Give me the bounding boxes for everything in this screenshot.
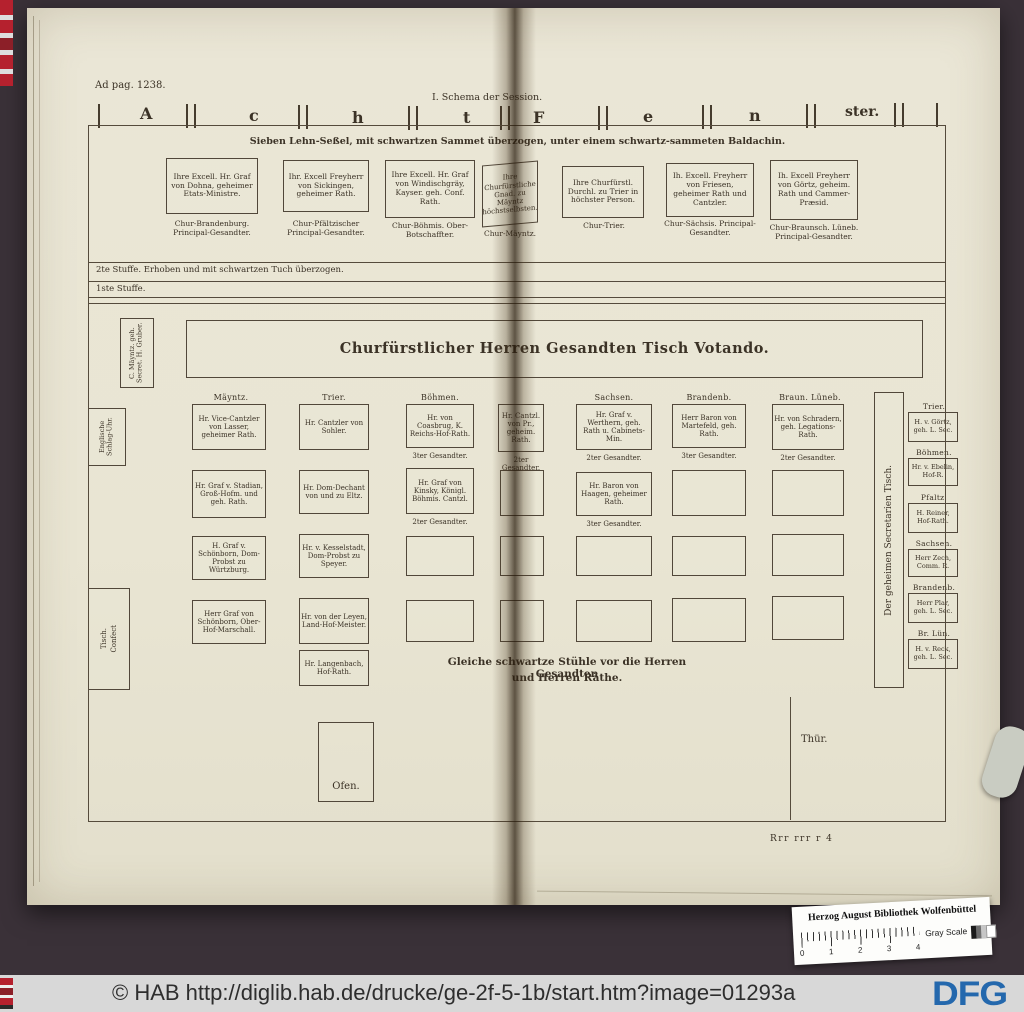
color-calibration-strip-top [0, 0, 13, 86]
secretary-box: H. Reiner, Hof-Rath. [908, 503, 958, 533]
chair-caption: Chur-Trier. [560, 222, 648, 231]
confect-label-1: Confect [110, 625, 118, 653]
seat-box: Hr. Graf v. Werthern, geh. Rath u. Cabin… [576, 404, 652, 450]
seat-box-empty [772, 534, 844, 576]
window-tick [894, 103, 896, 127]
seat-box-empty [406, 600, 474, 642]
ruler-number: 1 [829, 947, 834, 956]
seat-box: Hr. Cantzler von Sohler. [299, 404, 369, 450]
ruler-number: 2 [858, 946, 863, 955]
schema-session-label: I. Schema der Session. [432, 92, 542, 103]
chair-box: Ihre Excell. Hr. Graf von Windischgräy, … [385, 160, 475, 218]
column-header-braun: Braun. Lüneb. [770, 393, 850, 402]
confect-table: Tisch. Confect [88, 588, 130, 690]
ad-pag-label: Ad pag. 1238. [95, 80, 166, 91]
ruler-number: 4 [916, 943, 921, 952]
secretary-region: Böhmen. [908, 448, 960, 457]
window-tick [408, 106, 410, 130]
window-tick [902, 103, 904, 127]
seat-box-empty [576, 600, 652, 642]
column-header-brandenb: Brandenb. [672, 393, 746, 402]
printer-signature: Rrr rrr r 4 [770, 834, 833, 844]
sticker-title: Herzog August Bibliothek Wolfenbüttel [800, 903, 984, 924]
source-url-text: © HAB http://diglib.hab.de/drucke/ge-2f-… [112, 980, 795, 1006]
seat-box-empty [500, 536, 544, 576]
chair-box: Ihre Excell. Hr. Graf von Dohna, geheime… [166, 158, 258, 214]
seat-box: H. Graf v. Schönborn, Dom-Probst zu Würt… [192, 536, 266, 580]
wall-letter: A [140, 104, 152, 123]
secretaries-table: Der geheimen Secretarien Tisch. [874, 392, 904, 688]
chair-box: Ihre Churfürstliche Gnad. zu Mäyntz höch… [482, 161, 538, 228]
secretary-region: Brandenb. [908, 583, 960, 592]
window-tick [598, 106, 600, 130]
left-secretary-label: C. Mäyntz. geh. Secret. H. Gruber. [129, 320, 144, 386]
seat-sub: 3ter Gesandter. [406, 452, 474, 460]
seat-sub: 2ter Gesandter. [406, 518, 474, 526]
page-edge-line [39, 20, 40, 882]
seat-box: Hr. Cantzl. von Pr., geheim. Rath. [498, 404, 544, 452]
gray-swatch [986, 925, 997, 939]
ruler-coarse-ticks [801, 927, 920, 948]
secretaries-table-label: Der geheimen Secretarien Tisch. [884, 465, 895, 616]
seat-sub: 3ter Gesandter. [672, 452, 746, 460]
dfg-logo: DFG [932, 975, 1007, 1012]
seat-box-empty [500, 470, 544, 516]
secretary-box: Hr. v. Ebelin, Hof-R. [908, 458, 958, 486]
ruler-number: 3 [887, 944, 892, 953]
stove-label: Ofen. [332, 781, 359, 793]
window-tick [508, 106, 510, 130]
step2-label: 2te Stuffe. Erhoben und mit schwartzen T… [96, 265, 344, 275]
window-tick [606, 106, 608, 130]
wall-letter: e [643, 107, 653, 126]
chair-caption: Chur-Braunsch. Lüneb. Principal-Gesandte… [764, 224, 864, 241]
stove-box: Ofen. [318, 722, 374, 802]
chair-caption: Chur-Brandenburg. Principal-Gesandter. [158, 220, 266, 237]
page-edge-line [537, 891, 992, 897]
chair-box: Ih. Excell. Freyherr von Friesen, geheim… [666, 163, 754, 217]
screen: Ad pag. 1238. I. Schema der Session. A c… [0, 0, 1024, 1012]
seat-box: Hr. Graf v. Stadian, Groß-Hofm. und geh.… [192, 470, 266, 518]
seat-box: Herr Baron von Martefeld, geh. Rath. [672, 404, 746, 448]
ruler-number: 0 [800, 949, 805, 958]
column-header-sachsen: Sachsen. [578, 393, 650, 402]
seat-box-empty [406, 536, 474, 576]
chair-box: Ihr. Excell Freyherr von Sickingen, gehe… [283, 160, 369, 212]
seat-box: Hr. Vice-Cantzler von Lasser, geheimer R… [192, 404, 266, 450]
chair-caption: Chur-Böhmis. Ober-Botschaffter. [380, 222, 480, 239]
seat-box-empty [672, 470, 746, 516]
page-edge-line [33, 16, 34, 886]
seat-box: Hr. Dom-Dechant von und zu Eltz. [299, 470, 369, 514]
voting-table: Churfürstlicher Herren Gesandten Tisch V… [186, 320, 923, 378]
left-secretary-box: C. Mäyntz. geh. Secret. H. Gruber. [120, 318, 154, 388]
seat-box-empty [772, 470, 844, 516]
chair-caption: Chur-Sächsis. Principal-Gesandter. [662, 220, 758, 237]
seat-box: Herr Graf von Schönborn, Ober-Hof-Marsch… [192, 600, 266, 644]
secretary-region: Sachsen. [908, 539, 960, 548]
secretary-region: Pfaltz. [908, 493, 960, 502]
window-tick [416, 106, 418, 130]
right-wall-line [945, 125, 946, 822]
step-line [88, 262, 946, 263]
gray-scale-label: Gray Scale [925, 926, 968, 938]
column-header-trier: Trier. [300, 393, 368, 402]
seat-sub: 3ter Gesandter. [576, 520, 652, 528]
scanned-page-spread: Ad pag. 1238. I. Schema der Session. A c… [27, 8, 1000, 905]
step-line [88, 297, 946, 298]
english-clock-box: Englische Schlag-Uhr. [88, 408, 126, 466]
wall-letter: c [249, 106, 259, 125]
column-header-boehmen: Böhmen. [406, 393, 474, 402]
chair-box: Ihre Churfürstl. Durchl. zu Trier in höc… [562, 166, 644, 218]
wall-letter: n [749, 106, 761, 125]
secretary-box: H. v. Reck, geh. L. Sec. [908, 639, 958, 669]
column-header-mayntz: Mäyntz. [196, 393, 266, 402]
door-label: Thür. [801, 734, 827, 745]
seat-box: Hr. Graf von Kinsky, Königl. Böhmis. Can… [406, 468, 474, 514]
baldachin-caption: Sieben Lehn-Seßel, mit schwartzen Sammet… [245, 136, 790, 147]
seat-box: Hr. von Coasbrug, K. Reichs-Hof-Rath. [406, 404, 474, 448]
seat-box-empty [772, 596, 844, 640]
seat-box-empty [500, 600, 544, 642]
hab-grayscale-sticker: Herzog August Bibliothek Wolfenbüttel 0 … [792, 897, 993, 965]
seat-box-empty [672, 598, 746, 642]
seat-box: Hr. Langenbach, Hof-Rath. [299, 650, 369, 686]
left-wall-line [88, 125, 89, 822]
step-line [88, 281, 946, 282]
secretary-box: H. v. Görtz, geh. L. Sec. [908, 412, 958, 442]
bottom-wall-line [88, 821, 946, 822]
seat-box-empty [576, 536, 652, 576]
seat-box: Hr. v. Kesselstadt, Dom-Probst zu Speyer… [299, 534, 369, 578]
top-wall-line [88, 125, 946, 126]
voting-table-title: Churfürstlicher Herren Gesandten Tisch V… [340, 340, 769, 357]
chair-caption: Chur-Mäyntz. [480, 230, 540, 239]
stuehle-caption-line2: und Herren Räthe. [427, 672, 707, 684]
chair-caption: Chur-Pfältzischer Principal-Gesandter. [276, 220, 376, 237]
chair-box: Ih. Excell Freyherr von Görtz, geheim. R… [770, 160, 858, 220]
seat-sub: 2ter Gesandter. [772, 454, 844, 462]
secretary-region: Br. Lün. [908, 629, 960, 638]
step1-label: 1ste Stuffe. [96, 284, 145, 294]
color-calibration-strip-bottom [0, 978, 13, 1009]
bottom-bar: © HAB http://diglib.hab.de/drucke/ge-2f-… [0, 975, 1024, 1012]
step-line [88, 303, 946, 304]
secretary-box: Herr Zech, Comm. R. [908, 549, 958, 577]
seat-box: Hr. von Schradern, geh. Legations-Rath. [772, 404, 844, 450]
english-clock-label: Englische Schlag-Uhr. [99, 410, 114, 464]
seat-box-empty [672, 536, 746, 576]
secretary-box: Herr Plar, geh. L. Sec. [908, 593, 958, 623]
window-tick [500, 106, 502, 130]
seat-sub: 2ter Gesandter. [578, 454, 650, 462]
seat-box: Hr. von der Leyen, Land-Hof-Meister. [299, 598, 369, 644]
door-leaf-line [790, 697, 791, 820]
wall-letter: ster. [845, 104, 879, 120]
seat-box: Hr. Baron von Haagen, geheimer Rath. [576, 472, 652, 516]
confect-label-2: Tisch. [100, 628, 108, 649]
window-tick [936, 103, 938, 127]
secretary-region: Trier. [908, 402, 960, 411]
